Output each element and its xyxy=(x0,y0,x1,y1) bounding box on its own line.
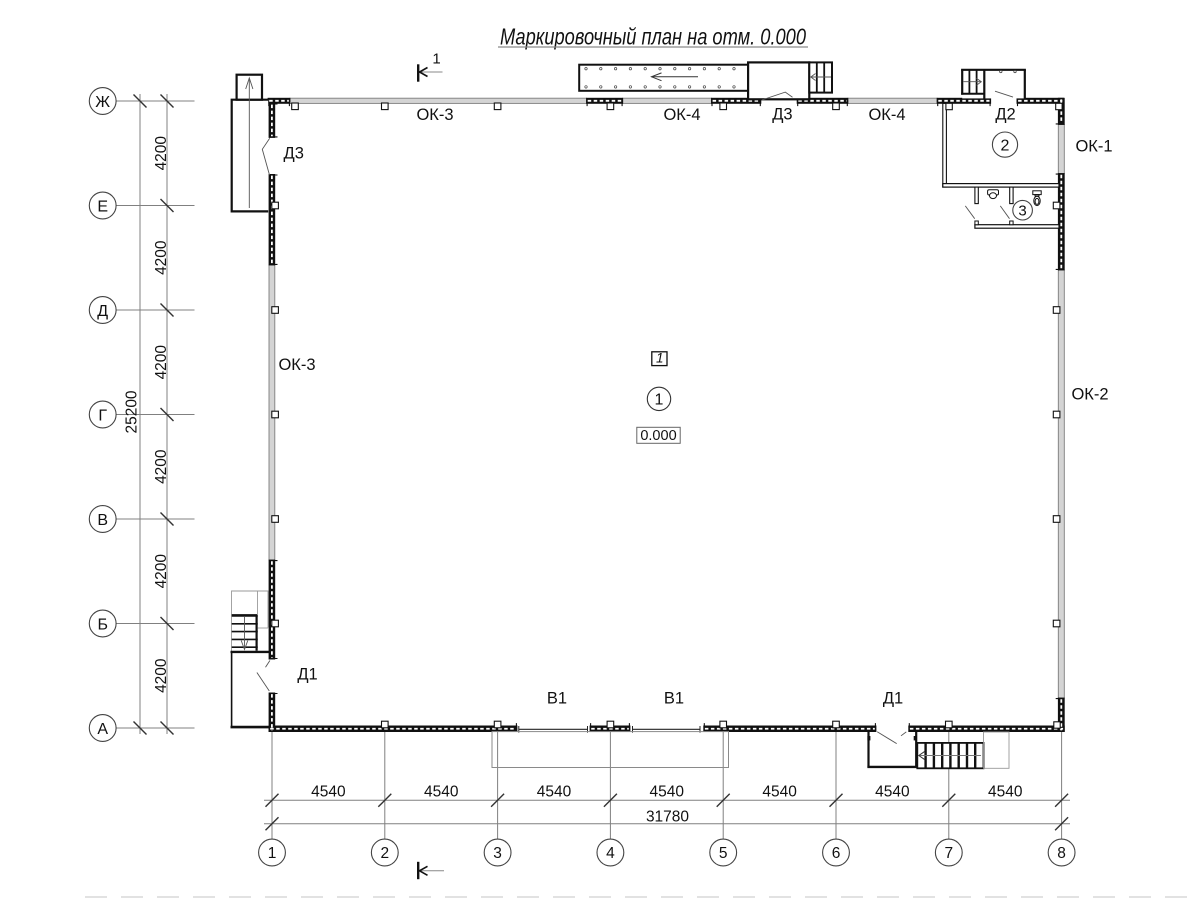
svg-text:4540: 4540 xyxy=(311,784,346,801)
svg-text:ОК-3: ОК-3 xyxy=(416,106,453,124)
svg-text:25200: 25200 xyxy=(124,390,141,433)
svg-text:4540: 4540 xyxy=(537,784,572,801)
svg-text:ОК-4: ОК-4 xyxy=(663,106,700,124)
svg-text:Маркировочный план на отм. 0.0: Маркировочный план на отм. 0.000 xyxy=(500,24,806,50)
svg-text:Б: Б xyxy=(97,616,108,633)
svg-text:Д3: Д3 xyxy=(772,105,792,123)
svg-text:4540: 4540 xyxy=(988,784,1023,801)
svg-text:3: 3 xyxy=(493,845,502,862)
svg-text:3: 3 xyxy=(1018,203,1026,220)
svg-text:Д3: Д3 xyxy=(284,145,304,163)
svg-text:4: 4 xyxy=(606,845,615,862)
svg-text:1: 1 xyxy=(656,351,664,366)
svg-text:ОК-2: ОК-2 xyxy=(1071,386,1108,404)
svg-text:Д2: Д2 xyxy=(995,105,1015,123)
svg-text:Д: Д xyxy=(97,303,108,320)
svg-text:ОК-1: ОК-1 xyxy=(1075,137,1112,155)
svg-text:31780: 31780 xyxy=(646,808,689,825)
svg-text:8: 8 xyxy=(1057,845,1066,862)
svg-text:4540: 4540 xyxy=(424,784,459,801)
svg-text:2: 2 xyxy=(380,845,389,862)
svg-text:Г: Г xyxy=(98,407,107,424)
svg-text:7: 7 xyxy=(944,845,953,862)
svg-text:4200: 4200 xyxy=(153,658,170,693)
svg-text:1: 1 xyxy=(268,845,277,862)
svg-text:ОК-4: ОК-4 xyxy=(868,106,905,124)
svg-text:6: 6 xyxy=(832,845,841,862)
svg-text:Д1: Д1 xyxy=(297,666,317,684)
svg-text:4540: 4540 xyxy=(762,784,797,801)
svg-text:4200: 4200 xyxy=(153,136,170,171)
svg-text:Е: Е xyxy=(97,198,108,215)
svg-text:1: 1 xyxy=(655,392,664,409)
svg-text:Ж: Ж xyxy=(95,94,110,111)
svg-text:5: 5 xyxy=(719,845,728,862)
svg-text:1: 1 xyxy=(432,51,440,68)
svg-text:ОК-3: ОК-3 xyxy=(278,356,315,374)
svg-text:4200: 4200 xyxy=(153,449,170,484)
svg-text:4540: 4540 xyxy=(875,784,910,801)
svg-text:0.000: 0.000 xyxy=(640,428,676,444)
svg-text:4540: 4540 xyxy=(650,784,685,801)
svg-text:В1: В1 xyxy=(664,689,684,707)
svg-text:2: 2 xyxy=(1001,137,1010,154)
svg-text:А: А xyxy=(97,721,108,738)
svg-text:Д1: Д1 xyxy=(883,690,903,708)
svg-text:В: В xyxy=(97,512,108,529)
svg-text:4200: 4200 xyxy=(153,345,170,380)
svg-text:В1: В1 xyxy=(547,689,567,707)
svg-text:4200: 4200 xyxy=(153,240,170,275)
svg-text:4200: 4200 xyxy=(153,554,170,589)
